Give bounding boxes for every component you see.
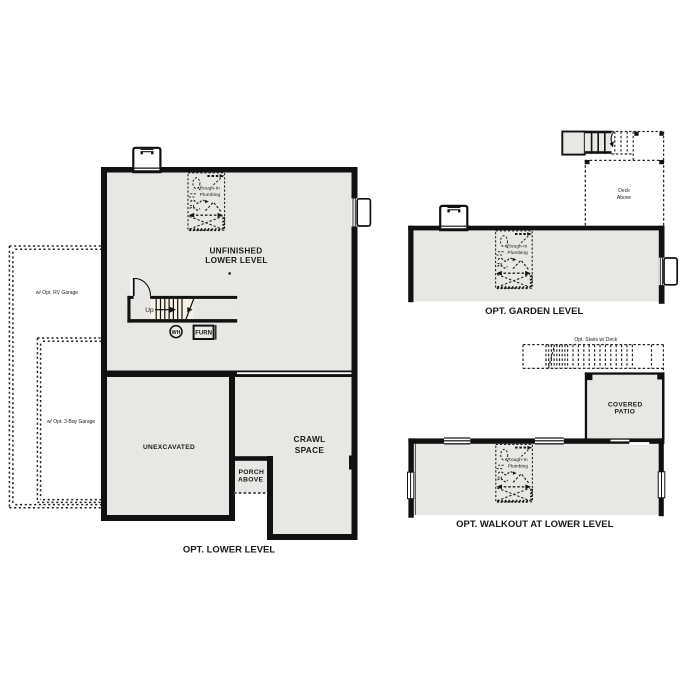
svg-text:UNEXCAVATED: UNEXCAVATED <box>143 444 195 451</box>
svg-text:SPACE: SPACE <box>295 445 325 455</box>
svg-text:OPT. LOWER LEVEL: OPT. LOWER LEVEL <box>183 545 276 556</box>
svg-text:LOWER LEVEL: LOWER LEVEL <box>205 256 267 265</box>
svg-text:Up: Up <box>145 307 154 314</box>
svg-text:COVERED: COVERED <box>608 402 643 409</box>
svg-text:Deck: Deck <box>618 188 630 194</box>
svg-text:OPT. WALKOUT AT LOWER LEVEL: OPT. WALKOUT AT LOWER LEVEL <box>456 519 613 530</box>
svg-text:Opt. Stairs w/ Deck: Opt. Stairs w/ Deck <box>574 337 617 343</box>
svg-text:FURN: FURN <box>195 331 212 337</box>
svg-text:CRAWL: CRAWL <box>294 434 326 444</box>
svg-text:w/ Opt. RV Garage: w/ Opt. RV Garage <box>36 290 78 296</box>
svg-text:OPT. GARDEN LEVEL: OPT. GARDEN LEVEL <box>485 306 583 317</box>
svg-text:w/ Opt. 3-Bay Garage: w/ Opt. 3-Bay Garage <box>47 419 96 425</box>
svg-text:WH: WH <box>172 330 181 336</box>
svg-text:UNFINISHED: UNFINISHED <box>209 246 262 255</box>
svg-text:PATIO: PATIO <box>614 409 635 416</box>
svg-text:ABOVE: ABOVE <box>238 477 264 484</box>
svg-text:Above: Above <box>617 195 631 201</box>
svg-text:PORCH: PORCH <box>238 469 264 476</box>
